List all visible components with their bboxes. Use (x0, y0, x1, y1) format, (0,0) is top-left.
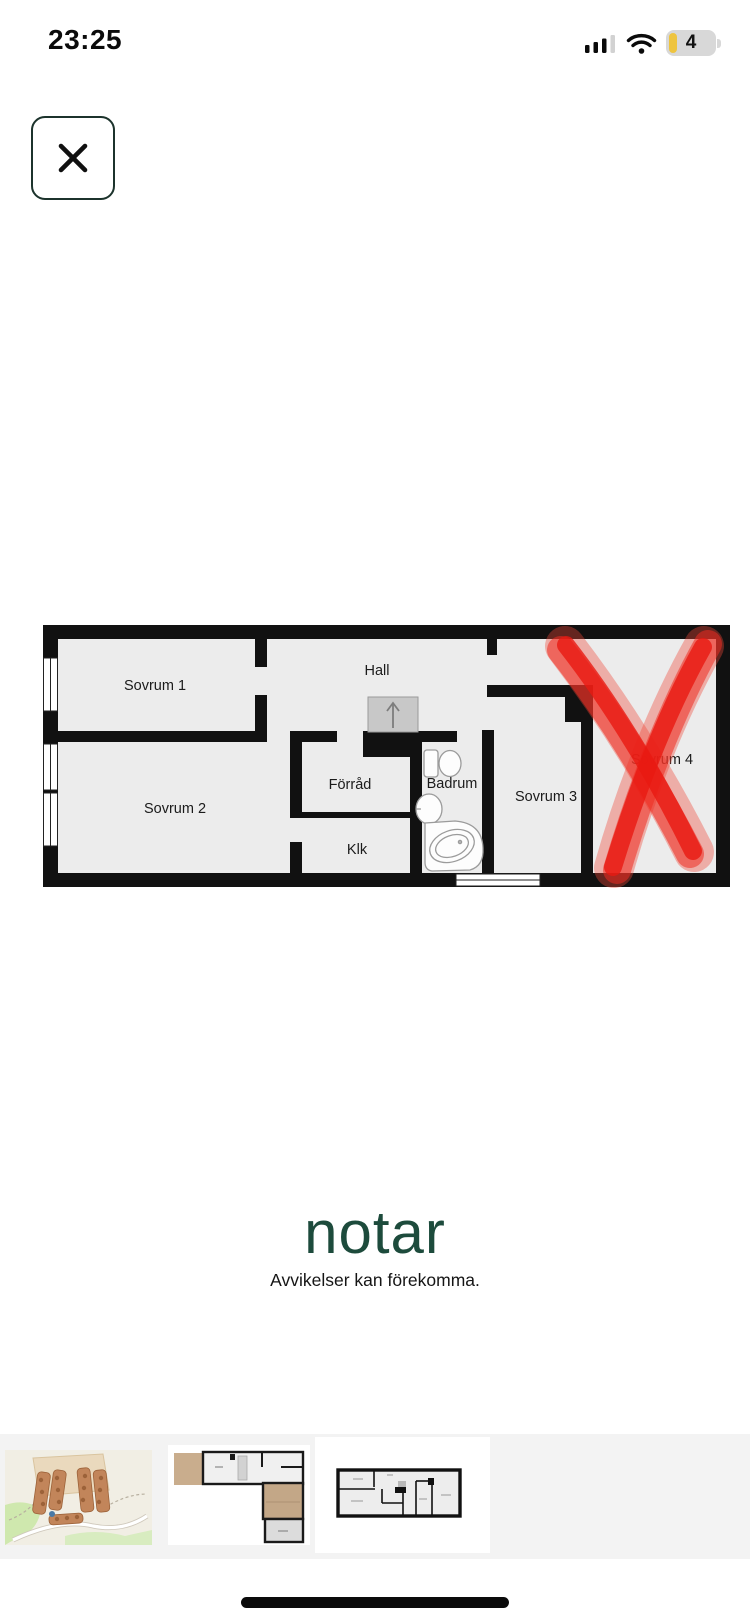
floorplan2-thumbnail-image (168, 1445, 310, 1545)
map-thumbnail-image (5, 1450, 152, 1545)
thumbnail-strip (0, 1434, 750, 1559)
status-icons: 4 (585, 28, 724, 58)
toilet-icon (424, 750, 438, 777)
room-label-sovrum3: Sovrum 3 (515, 789, 577, 805)
close-button[interactable] (31, 116, 115, 200)
battery-icon: 4 (666, 29, 724, 57)
room-label-hall: Hall (365, 663, 390, 679)
status-bar: 23:25 4 (0, 0, 750, 90)
room-label-sovrum2: Sovrum 2 (144, 801, 206, 817)
room-label-forrad: Förråd (329, 777, 372, 793)
clock: 23:25 (48, 24, 122, 56)
cellular-signal-icon (585, 32, 617, 54)
room-label-klk: Klk (347, 842, 368, 858)
wifi-icon (626, 32, 657, 55)
stairs (368, 697, 418, 732)
room-label-badrum: Badrum (427, 776, 478, 792)
notar-logo: notar (0, 1198, 750, 1267)
room-label-sovrum1: Sovrum 1 (124, 678, 186, 694)
close-icon (50, 135, 96, 181)
thumbnail-map[interactable] (5, 1450, 152, 1545)
floorplan3-thumbnail-image (315, 1437, 490, 1553)
thumbnail-floorplan-other[interactable] (168, 1445, 310, 1545)
battery-percent: 4 (666, 30, 716, 56)
floorplan-image[interactable]: Sovrum 1 Sovrum 2 Hall Förråd Klk Badrum… (0, 600, 750, 900)
photo-viewer-screen: 23:25 4 (0, 0, 750, 1624)
toilet-bowl-icon (439, 751, 461, 777)
disclaimer-text: Avvikelser kan förekomma. (0, 1270, 750, 1291)
thumbnail-floorplan-current[interactable] (315, 1437, 490, 1553)
home-indicator[interactable] (241, 1597, 509, 1608)
floorplan-drawing: Sovrum 1 Sovrum 2 Hall Förråd Klk Badrum… (0, 600, 750, 900)
